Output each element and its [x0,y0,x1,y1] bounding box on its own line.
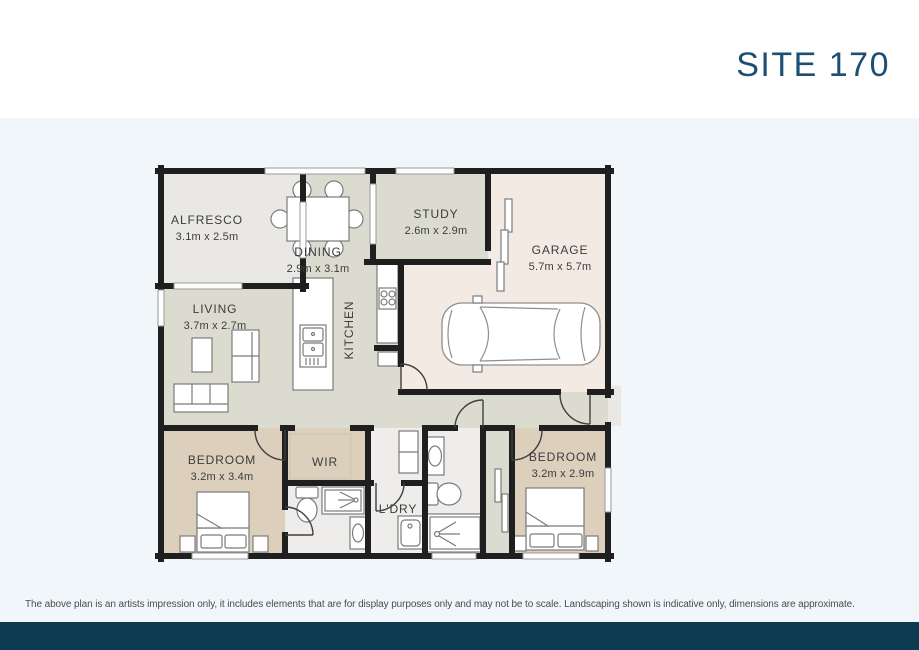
label-alfresco: ALFRESCO [171,213,243,227]
toilet-icon [427,483,461,505]
window-bedroom-2 [523,553,579,559]
dims-bedroom-1: 3.2m x 3.4m [191,471,254,483]
window-bathroom [432,553,476,559]
dims-dining: 2.9m x 3.1m [287,263,350,275]
label-wir: WIR [312,455,338,469]
floor-alfresco [161,171,303,286]
kitchen-island [293,278,333,390]
dims-alfresco: 3.1m x 2.5m [176,231,239,243]
laundry-tub-icon [398,516,423,549]
car [442,296,600,372]
armchair [232,330,259,382]
label-dining: DINING [294,245,341,259]
window-alfresco-door [174,283,242,289]
shower-icon [427,514,483,552]
bedside-table [180,536,195,552]
label-garage: GARAGE [532,243,589,257]
dims-living: 3.7m x 2.7m [184,320,247,332]
floor-plan: ALFRESCO 3.1m x 2.5m DINING 2.9m x 3.1m … [0,0,919,650]
sofa [174,384,228,412]
label-ldry: L'DRY [379,502,418,516]
label-bedroom-1: BEDROOM [188,453,256,467]
bedside-table [514,536,526,551]
disclaimer-text: The above plan is an artists impression … [25,599,915,610]
vanity-basin-icon [350,517,366,549]
window-dining [265,168,365,174]
label-study: STUDY [413,207,458,221]
bedside-table [253,536,268,552]
window-living [158,290,164,326]
footer-bar [0,622,919,650]
window-bedroom-1 [192,553,248,559]
label-bedroom-2: BEDROOM [529,450,597,464]
label-living: LIVING [193,302,238,316]
car-mirror [473,296,482,303]
shower-icon [322,487,364,514]
vanity-basin-icon [427,437,444,475]
bedside-table [586,536,598,551]
dims-bedroom-2: 3.2m x 2.9m [532,468,595,480]
coffee-table [192,338,212,372]
label-kitchen: KITCHEN [342,301,356,360]
dims-study: 2.6m x 2.9m [405,225,468,237]
window-dining-study [370,184,376,244]
window-bedroom-2-side [605,468,611,512]
window-study [396,168,454,174]
dims-garage: 5.7m x 5.7m [529,261,592,273]
car-mirror [473,365,482,372]
